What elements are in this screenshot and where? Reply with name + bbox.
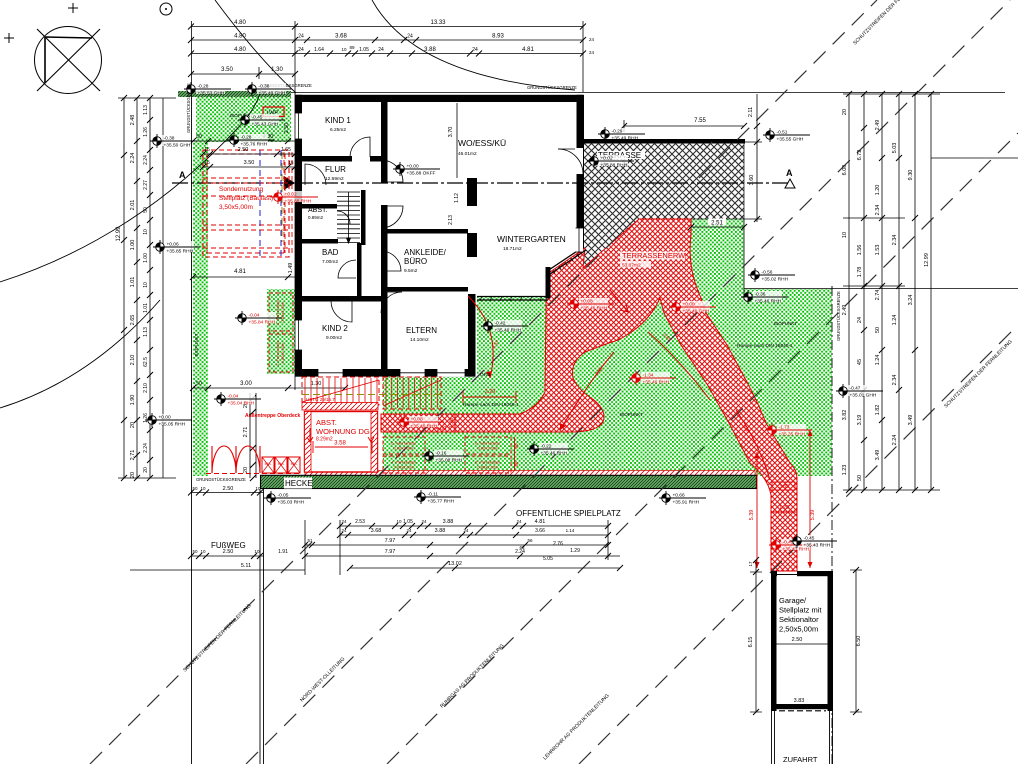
svg-text:3.49: 3.49 (875, 450, 881, 461)
svg-text:24: 24 (857, 317, 863, 323)
svg-text:24: 24 (516, 519, 522, 524)
svg-text:20: 20 (130, 422, 136, 428)
svg-text:-0.28: -0.28 (198, 84, 209, 90)
svg-text:1.91: 1.91 (278, 549, 288, 555)
svg-text:2.49: 2.49 (842, 305, 848, 316)
svg-text:+0.08: +0.08 (581, 299, 593, 305)
svg-text:+35.43 GHH: +35.43 GHH (252, 122, 279, 128)
svg-text:HSTG 29/16.7: HSTG 29/16.7 (306, 397, 335, 402)
svg-text:18.71m2: 18.71m2 (503, 246, 522, 252)
svg-text:5.03: 5.03 (892, 143, 898, 154)
svg-text:Rampe nach DIN 18040-1: Rampe nach DIN 18040-1 (737, 343, 793, 349)
svg-text:+0.66: +0.66 (673, 493, 685, 499)
svg-text:80: 80 (514, 443, 519, 449)
svg-text:-0.45: -0.45 (804, 536, 815, 542)
svg-text:WOHNUNG DG: WOHNUNG DG (316, 427, 370, 436)
svg-text:ABST.: ABST. (316, 418, 337, 427)
svg-text:4.81: 4.81 (535, 519, 546, 525)
svg-text:Außentreppe Oberdeck: Außentreppe Oberdeck (245, 413, 301, 419)
svg-text:10: 10 (200, 486, 206, 491)
svg-text:+35.84 RHH: +35.84 RHH (249, 320, 276, 326)
svg-text:FLUR: FLUR (325, 165, 346, 174)
svg-text:1.90: 1.90 (130, 395, 136, 406)
svg-text:+0.02: +0.02 (285, 192, 297, 198)
svg-text:2.29: 2.29 (485, 389, 496, 395)
svg-text:10: 10 (254, 549, 260, 554)
svg-text:-0.29: -0.29 (612, 129, 623, 135)
svg-text:13.33: 13.33 (430, 20, 446, 26)
svg-text:24: 24 (378, 47, 384, 53)
svg-text:-0.51: -0.51 (777, 130, 788, 136)
svg-text:46.01m2: 46.01m2 (458, 151, 477, 157)
svg-text:KIND 2: KIND 2 (322, 324, 348, 333)
svg-text:+35.46 RHH: +35.46 RHH (755, 299, 782, 305)
svg-text:+35.04 RHH: +35.04 RHH (228, 401, 255, 407)
svg-text:1.05: 1.05 (403, 519, 413, 525)
svg-text:KIND 1: KIND 1 (325, 116, 351, 125)
svg-text:3.50: 3.50 (244, 160, 255, 166)
svg-text:-0.04: -0.04 (228, 394, 239, 400)
svg-text:ELTERN: ELTERN (406, 326, 437, 335)
svg-text:1.65: 1.65 (281, 147, 291, 153)
svg-text:89: 89 (349, 45, 355, 50)
svg-text:-0.04: -0.04 (249, 313, 260, 319)
svg-text:2.74: 2.74 (875, 290, 881, 301)
svg-text:ABST.: ABST. (308, 207, 328, 214)
svg-text:6.50: 6.50 (856, 636, 862, 647)
svg-text:+0.08: +0.08 (411, 417, 423, 423)
svg-text:+35.88 RHH: +35.88 RHH (285, 199, 312, 205)
svg-text:50: 50 (196, 381, 202, 387)
svg-text:10: 10 (842, 232, 848, 238)
svg-text:2.50: 2.50 (238, 147, 249, 153)
svg-text:9.30: 9.30 (908, 170, 914, 181)
svg-text:2.34: 2.34 (892, 235, 898, 246)
svg-text:3.66: 3.66 (535, 528, 545, 534)
svg-text:6.25m2: 6.25m2 (330, 127, 346, 133)
svg-text:2.13: 2.13 (448, 215, 454, 225)
svg-text:-0.36: -0.36 (755, 292, 766, 298)
svg-text:+35.05 RHH: +35.05 RHH (159, 422, 186, 428)
svg-text:2.76: 2.76 (553, 541, 563, 547)
svg-text:3.82: 3.82 (842, 410, 848, 421)
svg-text:Rampe nach DIN 18040-1: Rampe nach DIN 18040-1 (463, 402, 519, 408)
svg-text:4.80: 4.80 (234, 47, 246, 53)
svg-text:13.02: 13.02 (448, 561, 462, 567)
svg-text:+35.46 RHH: +35.46 RHH (495, 328, 522, 334)
svg-text:3.88: 3.88 (443, 519, 454, 525)
svg-text:GRB: GRB (480, 372, 490, 378)
svg-text:+35.46 RHH: +35.46 RHH (411, 424, 438, 430)
svg-text:BIOPUNKT: BIOPUNKT (774, 321, 797, 326)
svg-text:WO/ESS/KÜ: WO/ESS/KÜ (458, 138, 506, 148)
svg-text:20: 20 (143, 467, 149, 473)
svg-text:80: 80 (514, 461, 519, 467)
svg-text:6.15: 6.15 (748, 637, 754, 648)
svg-text:4.80: 4.80 (234, 20, 246, 26)
svg-text:Stellplatz mit: Stellplatz mit (779, 606, 822, 615)
svg-text:2.48: 2.48 (130, 115, 136, 126)
svg-text:2.27: 2.27 (143, 180, 149, 190)
svg-text:+0.06: +0.06 (167, 242, 179, 248)
svg-text:1.14: 1.14 (566, 528, 575, 533)
svg-text:1.01: 1.01 (143, 303, 149, 313)
svg-text:2.71: 2.71 (243, 427, 249, 438)
svg-text:50: 50 (192, 549, 198, 554)
svg-text:20: 20 (842, 109, 848, 115)
svg-text:15: 15 (288, 160, 294, 165)
svg-text:+35.53 GHH: +35.53 GHH (198, 91, 225, 97)
svg-text:GRUNDSTÜCKSGRENZE: GRUNDSTÜCKSGRENZE (836, 291, 841, 341)
svg-text:1.82: 1.82 (875, 405, 881, 416)
svg-text:12.99: 12.99 (116, 226, 122, 242)
svg-text:8.29m2: 8.29m2 (316, 437, 333, 443)
svg-text:+35.50 GHH: +35.50 GHH (164, 143, 191, 149)
svg-text:0.80x2.00m: 0.80x2.00m (394, 446, 416, 451)
svg-text:2.50: 2.50 (792, 637, 803, 643)
svg-text:-1.73: -1.73 (779, 425, 790, 431)
svg-text:24: 24 (463, 528, 469, 533)
svg-text:MLL: MLL (291, 462, 298, 466)
svg-text:6.08: 6.08 (842, 165, 848, 176)
svg-text:10: 10 (341, 47, 347, 52)
svg-text:1.20: 1.20 (875, 185, 881, 196)
svg-text:2.49: 2.49 (875, 120, 881, 131)
svg-text:HECKE: HECKE (285, 479, 313, 488)
svg-text:2.10: 2.10 (130, 355, 136, 366)
svg-text:50: 50 (857, 475, 863, 481)
svg-text:17: 17 (748, 561, 753, 567)
svg-text:+35.85 RHH: +35.85 RHH (167, 249, 194, 255)
svg-text:9.00m2: 9.00m2 (326, 335, 342, 341)
svg-text:1.12: 1.12 (454, 193, 460, 203)
svg-text:3.88: 3.88 (435, 528, 446, 534)
svg-text:50: 50 (196, 134, 202, 140)
svg-text:0.80x2.00m: 0.80x2.00m (280, 342, 285, 364)
svg-text:10: 10 (143, 282, 149, 288)
svg-text:8.93: 8.93 (492, 34, 504, 40)
svg-text:1.00: 1.00 (143, 253, 149, 263)
svg-text:2.24: 2.24 (143, 443, 149, 453)
svg-text:7.55: 7.55 (694, 118, 706, 124)
svg-text:+35.01 GHH: +35.01 GHH (850, 393, 877, 399)
svg-text:2.65: 2.65 (130, 315, 136, 326)
svg-text:2.53: 2.53 (355, 519, 365, 525)
svg-text:24: 24 (298, 47, 304, 53)
svg-text:ANKLEIDE/: ANKLEIDE/ (404, 248, 447, 257)
svg-text:3.85: 3.85 (779, 484, 789, 490)
svg-text:56: 56 (527, 538, 533, 543)
svg-text:+35.03 RHH: +35.03 RHH (278, 500, 305, 506)
svg-text:2.34: 2.34 (875, 205, 881, 216)
svg-text:-0.38: -0.38 (259, 84, 270, 90)
svg-text:24: 24 (589, 37, 595, 42)
svg-text:+35.46 RHH: +35.46 RHH (581, 306, 608, 312)
svg-text:+35.46 RHH: +35.46 RHH (643, 380, 670, 386)
svg-text:24: 24 (421, 519, 427, 524)
svg-text:0.80x2.00m: 0.80x2.00m (478, 446, 500, 451)
svg-text:+35.55 GHH: +35.55 GHH (777, 137, 804, 143)
svg-text:BIOPUNKT: BIOPUNKT (194, 333, 199, 356)
svg-text:10: 10 (396, 519, 402, 524)
svg-text:-0.22: -0.22 (541, 444, 552, 450)
svg-text:2.51: 2.51 (711, 221, 723, 227)
svg-text:Stellplatz (Baulast): Stellplatz (Baulast) (219, 195, 273, 202)
svg-text:-0.38: -0.38 (164, 136, 175, 142)
svg-text:+35.49 RHH: +35.49 RHH (612, 136, 639, 142)
svg-text:3.00: 3.00 (240, 381, 252, 387)
svg-text:3.19: 3.19 (857, 415, 863, 426)
svg-text:1.29: 1.29 (570, 548, 580, 554)
svg-text:1.26: 1.26 (143, 127, 149, 137)
svg-text:A: A (179, 170, 186, 180)
svg-text:1.49: 1.49 (288, 263, 294, 274)
svg-text:2.24: 2.24 (515, 549, 525, 555)
svg-text:1.20: 1.20 (779, 505, 789, 511)
svg-text:+35.46 RHH: +35.46 RHH (541, 451, 568, 457)
svg-text:2.24: 2.24 (892, 435, 898, 446)
svg-text:3.88: 3.88 (424, 47, 436, 53)
svg-text:-0.56: -0.56 (762, 270, 773, 276)
svg-text:-0.05: -0.05 (278, 493, 289, 499)
svg-text:-0.45: -0.45 (783, 540, 794, 546)
svg-text:62.5: 62.5 (143, 357, 149, 367)
svg-text:7.00m2: 7.00m2 (322, 259, 338, 265)
svg-text:GRUNDSTÜCKSGRENZE: GRUNDSTÜCKSGRENZE (527, 85, 577, 90)
svg-text:3.50: 3.50 (221, 67, 233, 73)
svg-text:OFFENTLICHE SPIELPLATZ: OFFENTLICHE SPIELPLATZ (516, 509, 621, 518)
svg-text:+35.08 RHH: +35.08 RHH (436, 458, 463, 464)
svg-text:3.60: 3.60 (749, 175, 755, 186)
svg-text:MLL: MLL (278, 462, 285, 466)
svg-text:12.99: 12.99 (924, 253, 930, 267)
svg-text:50: 50 (143, 207, 149, 213)
svg-text:2.24: 2.24 (130, 153, 136, 164)
svg-text:0.80x2.00m: 0.80x2.00m (478, 465, 500, 470)
svg-text:2.00x2.00m: 2.00x2.00m (394, 465, 416, 470)
svg-text:Garage/: Garage/ (779, 596, 807, 605)
svg-text:2.71: 2.71 (130, 450, 136, 461)
svg-text:-0.42: -0.42 (495, 321, 506, 327)
svg-text:20: 20 (130, 472, 136, 478)
svg-text:53.07m2: 53.07m2 (622, 263, 641, 269)
svg-text:FUßWEG: FUßWEG (211, 541, 246, 550)
svg-text:5.05: 5.05 (543, 556, 553, 562)
svg-text:2.50: 2.50 (284, 123, 290, 134)
svg-text:1.23: 1.23 (842, 465, 848, 476)
svg-text:+0.02: +0.02 (601, 156, 613, 162)
svg-text:+35.76 RHH: +35.76 RHH (241, 142, 268, 148)
svg-text:2.34: 2.34 (892, 375, 898, 386)
svg-text:1.30: 1.30 (311, 381, 322, 387)
svg-text:24: 24 (341, 528, 347, 533)
svg-text:BÜRO: BÜRO (404, 257, 427, 266)
svg-text:15: 15 (204, 147, 210, 153)
svg-text:7.97: 7.97 (385, 549, 396, 555)
svg-text:+35.46 GHH: +35.46 GHH (683, 309, 710, 315)
svg-text:+35.88 RHH: +35.88 RHH (601, 163, 628, 169)
svg-text:10: 10 (200, 549, 206, 554)
svg-text:1.30: 1.30 (271, 67, 283, 73)
svg-text:-0.11: -0.11 (428, 492, 439, 498)
svg-text:3.49: 3.49 (908, 415, 914, 426)
svg-text:MLL: MLL (265, 462, 272, 466)
svg-text:Sektionaltor: Sektionaltor (779, 615, 819, 624)
svg-text:1.64: 1.64 (314, 47, 324, 53)
svg-text:+35.49 GHH: +35.49 GHH (259, 91, 286, 97)
svg-text:5.39: 5.39 (810, 510, 816, 521)
svg-text:-0.28: -0.28 (241, 135, 252, 141)
svg-text:1.24: 1.24 (892, 315, 898, 326)
svg-text:1.05: 1.05 (359, 47, 369, 53)
svg-text:2.11: 2.11 (748, 107, 754, 117)
svg-text:+35.88 OKFF: +35.88 OKFF (407, 171, 436, 177)
svg-text:5.11: 5.11 (241, 563, 251, 569)
svg-text:ZUFAHRT: ZUFAHRT (783, 755, 818, 764)
svg-text:+35.77 RHH: +35.77 RHH (428, 499, 455, 505)
svg-text:24: 24 (406, 528, 412, 533)
svg-text:A: A (786, 168, 793, 178)
svg-text:+0.00: +0.00 (683, 302, 695, 308)
svg-text:-1.34: -1.34 (643, 373, 654, 379)
svg-text:2.24: 2.24 (143, 155, 149, 165)
svg-text:+35.35 RHH: +35.35 RHH (779, 432, 806, 438)
svg-text:15: 15 (204, 160, 210, 166)
svg-text:3.24: 3.24 (908, 295, 914, 306)
svg-text:6.72: 6.72 (857, 150, 863, 161)
svg-text:45: 45 (857, 359, 863, 365)
svg-text:50: 50 (875, 327, 881, 333)
svg-text:3.70: 3.70 (448, 127, 454, 138)
svg-text:10: 10 (143, 229, 149, 235)
svg-text:9.5m2: 9.5m2 (404, 268, 418, 274)
svg-text:14.10m2: 14.10m2 (410, 337, 429, 343)
svg-text:24: 24 (472, 47, 478, 53)
svg-text:24: 24 (407, 34, 413, 40)
svg-text:51: 51 (307, 538, 313, 543)
svg-text:24: 24 (589, 50, 595, 55)
svg-text:+35.43 RHH: +35.43 RHH (804, 543, 831, 549)
svg-text:1.24: 1.24 (875, 355, 881, 366)
svg-text:3.68: 3.68 (371, 528, 382, 534)
svg-text:WINTERGARTEN: WINTERGARTEN (497, 234, 566, 244)
svg-text:1.20: 1.20 (449, 418, 455, 429)
svg-text:50: 50 (192, 486, 198, 491)
svg-text:0.89m2: 0.89m2 (308, 215, 324, 220)
svg-text:-0.47: -0.47 (850, 386, 861, 392)
svg-text:10: 10 (255, 486, 261, 491)
svg-text:1.53: 1.53 (875, 245, 881, 256)
svg-text:3.83: 3.83 (794, 698, 805, 704)
svg-text:24: 24 (341, 519, 347, 524)
svg-text:1.78: 1.78 (857, 267, 863, 278)
svg-text:20: 20 (243, 467, 249, 473)
svg-text:Sondernutzung: Sondernutzung (219, 186, 263, 193)
svg-text:-0.16: -0.16 (436, 451, 447, 457)
svg-text:1.56: 1.56 (857, 245, 863, 256)
svg-text:4.81: 4.81 (522, 47, 534, 53)
svg-text:24: 24 (298, 34, 304, 40)
svg-text:BAD: BAD (322, 248, 339, 257)
svg-text:-0.45: -0.45 (252, 115, 263, 121)
svg-text:TERRASSENERW.: TERRASSENERW. (622, 251, 687, 260)
svg-text:3.58: 3.58 (334, 441, 346, 447)
svg-text:4.80: 4.80 (234, 34, 246, 40)
svg-text:BIOPUNKT: BIOPUNKT (620, 412, 643, 417)
svg-text:2.10: 2.10 (143, 383, 149, 393)
svg-text:2.01: 2.01 (130, 200, 136, 211)
svg-text:3,50x5,00m: 3,50x5,00m (219, 204, 253, 211)
svg-text:GRUNDSTÜCKSGRENZE: GRUNDSTÜCKSGRENZE (196, 477, 246, 482)
svg-text:1.01: 1.01 (130, 277, 136, 288)
svg-text:2,50x5,00m: 2,50x5,00m (779, 625, 818, 634)
svg-text:7.97: 7.97 (385, 538, 396, 544)
svg-text:2.50: 2.50 (223, 486, 234, 492)
svg-text:1.13: 1.13 (143, 105, 149, 115)
svg-text:+0.00: +0.00 (407, 164, 419, 170)
svg-text:+35.91 RHH: +35.91 RHH (673, 500, 700, 506)
svg-text:0.80x2.00m: 0.80x2.00m (280, 301, 285, 323)
svg-text:3.68: 3.68 (335, 34, 347, 40)
svg-text:5.39: 5.39 (749, 510, 755, 521)
svg-text:1.00: 1.00 (130, 240, 136, 251)
svg-text:+35.02 RHH: +35.02 RHH (762, 277, 789, 283)
svg-text:12.69m2: 12.69m2 (325, 176, 344, 182)
svg-text:1.13: 1.13 (143, 327, 149, 337)
svg-text:4.81: 4.81 (234, 269, 246, 275)
svg-text:+0.00: +0.00 (159, 415, 171, 421)
